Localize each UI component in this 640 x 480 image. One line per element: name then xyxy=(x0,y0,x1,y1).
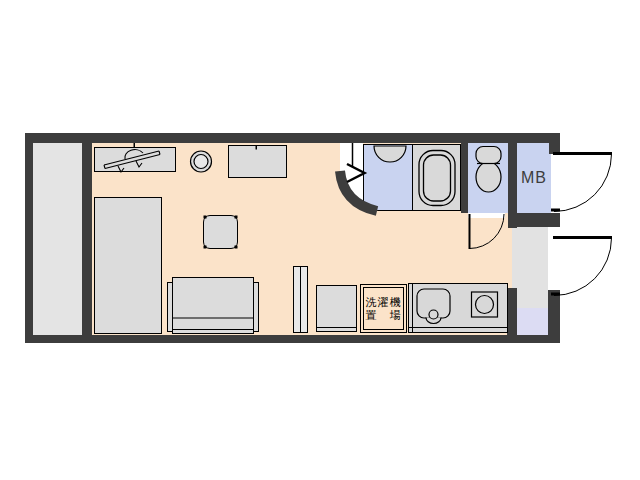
shelf-tick-right xyxy=(256,145,258,150)
toilet-icon xyxy=(476,147,501,193)
sink-icon xyxy=(417,289,450,324)
bathroom-folding-door-icon xyxy=(347,143,365,182)
shelf-tick-left xyxy=(134,143,136,148)
entrance-door-arc xyxy=(551,238,612,296)
fixtures-and-doors-layer xyxy=(0,0,640,480)
floor-plan: MB 洗濯機 置 場 xyxy=(0,0,640,480)
round-stool-icon xyxy=(191,151,212,172)
stove-icon xyxy=(472,292,498,317)
bathtub-icon xyxy=(419,151,455,206)
low-table-corner-marks xyxy=(204,216,238,249)
wash-basin-icon xyxy=(374,146,406,162)
ornament-icon xyxy=(104,150,160,172)
meter-box-door-arc xyxy=(551,154,612,212)
toilet-door-arc xyxy=(470,214,505,249)
sofa-back-lines xyxy=(173,318,254,330)
